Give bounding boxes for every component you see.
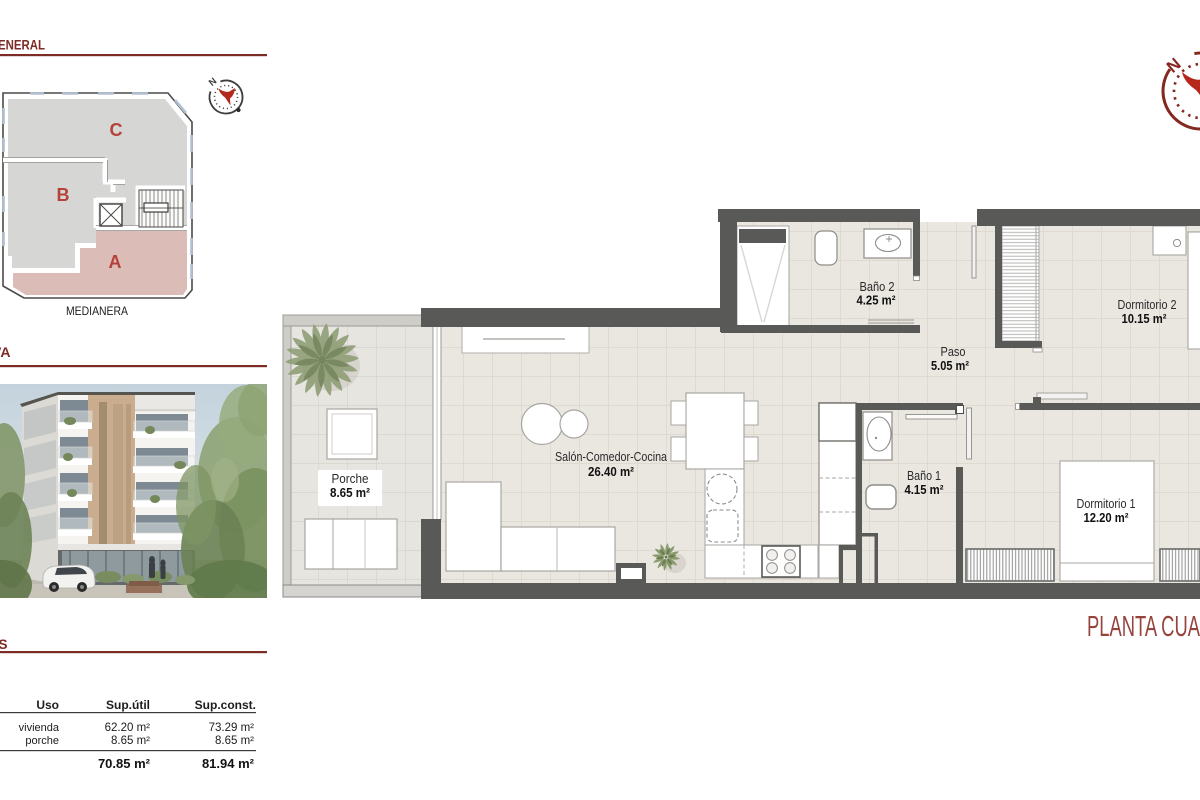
svg-text:S: S <box>0 637 8 652</box>
svg-text:porche: porche <box>25 735 59 747</box>
svg-text:Baño 1: Baño 1 <box>907 468 941 483</box>
svg-text:Salón-Comedor-Cocina: Salón-Comedor-Cocina <box>555 449 668 464</box>
svg-text:vivienda: vivienda <box>19 722 60 734</box>
svg-text:VA: VA <box>0 345 11 360</box>
svg-text:Uso: Uso <box>36 698 59 712</box>
svg-text:73.29 m²: 73.29 m² <box>209 722 255 734</box>
svg-text:ENERAL: ENERAL <box>0 38 45 53</box>
svg-text:26.40 m²: 26.40 m² <box>588 464 635 479</box>
svg-text:A: A <box>109 252 122 272</box>
svg-text:Dormitorio 1: Dormitorio 1 <box>1077 496 1136 511</box>
svg-text:8.65 m²: 8.65 m² <box>215 735 254 747</box>
svg-text:8.65 m²: 8.65 m² <box>111 735 150 747</box>
svg-text:PLANTA CUARTA: PLANTA CUARTA <box>1087 611 1200 643</box>
svg-text:C: C <box>110 120 123 140</box>
svg-text:B: B <box>57 185 70 205</box>
svg-text:5.05 m²: 5.05 m² <box>931 359 969 373</box>
svg-text:81.94 m²: 81.94 m² <box>202 756 255 771</box>
svg-text:Sup.const.: Sup.const. <box>195 698 256 712</box>
svg-text:4.25 m²: 4.25 m² <box>857 293 897 308</box>
svg-text:Paso: Paso <box>941 345 966 359</box>
svg-text:10.15 m²: 10.15 m² <box>1122 311 1168 326</box>
svg-text:4.15 m²: 4.15 m² <box>905 482 945 497</box>
svg-text:Sup.útil: Sup.útil <box>106 698 150 712</box>
svg-text:12.20 m²: 12.20 m² <box>1084 510 1130 525</box>
svg-text:MEDIANERA: MEDIANERA <box>66 306 128 318</box>
svg-text:62.20 m²: 62.20 m² <box>105 722 151 734</box>
svg-text:Porche: Porche <box>332 472 369 486</box>
svg-text:70.85 m²: 70.85 m² <box>98 756 151 771</box>
svg-text:Dormitorio 2: Dormitorio 2 <box>1118 297 1177 312</box>
svg-text:8.65 m²: 8.65 m² <box>330 486 370 500</box>
